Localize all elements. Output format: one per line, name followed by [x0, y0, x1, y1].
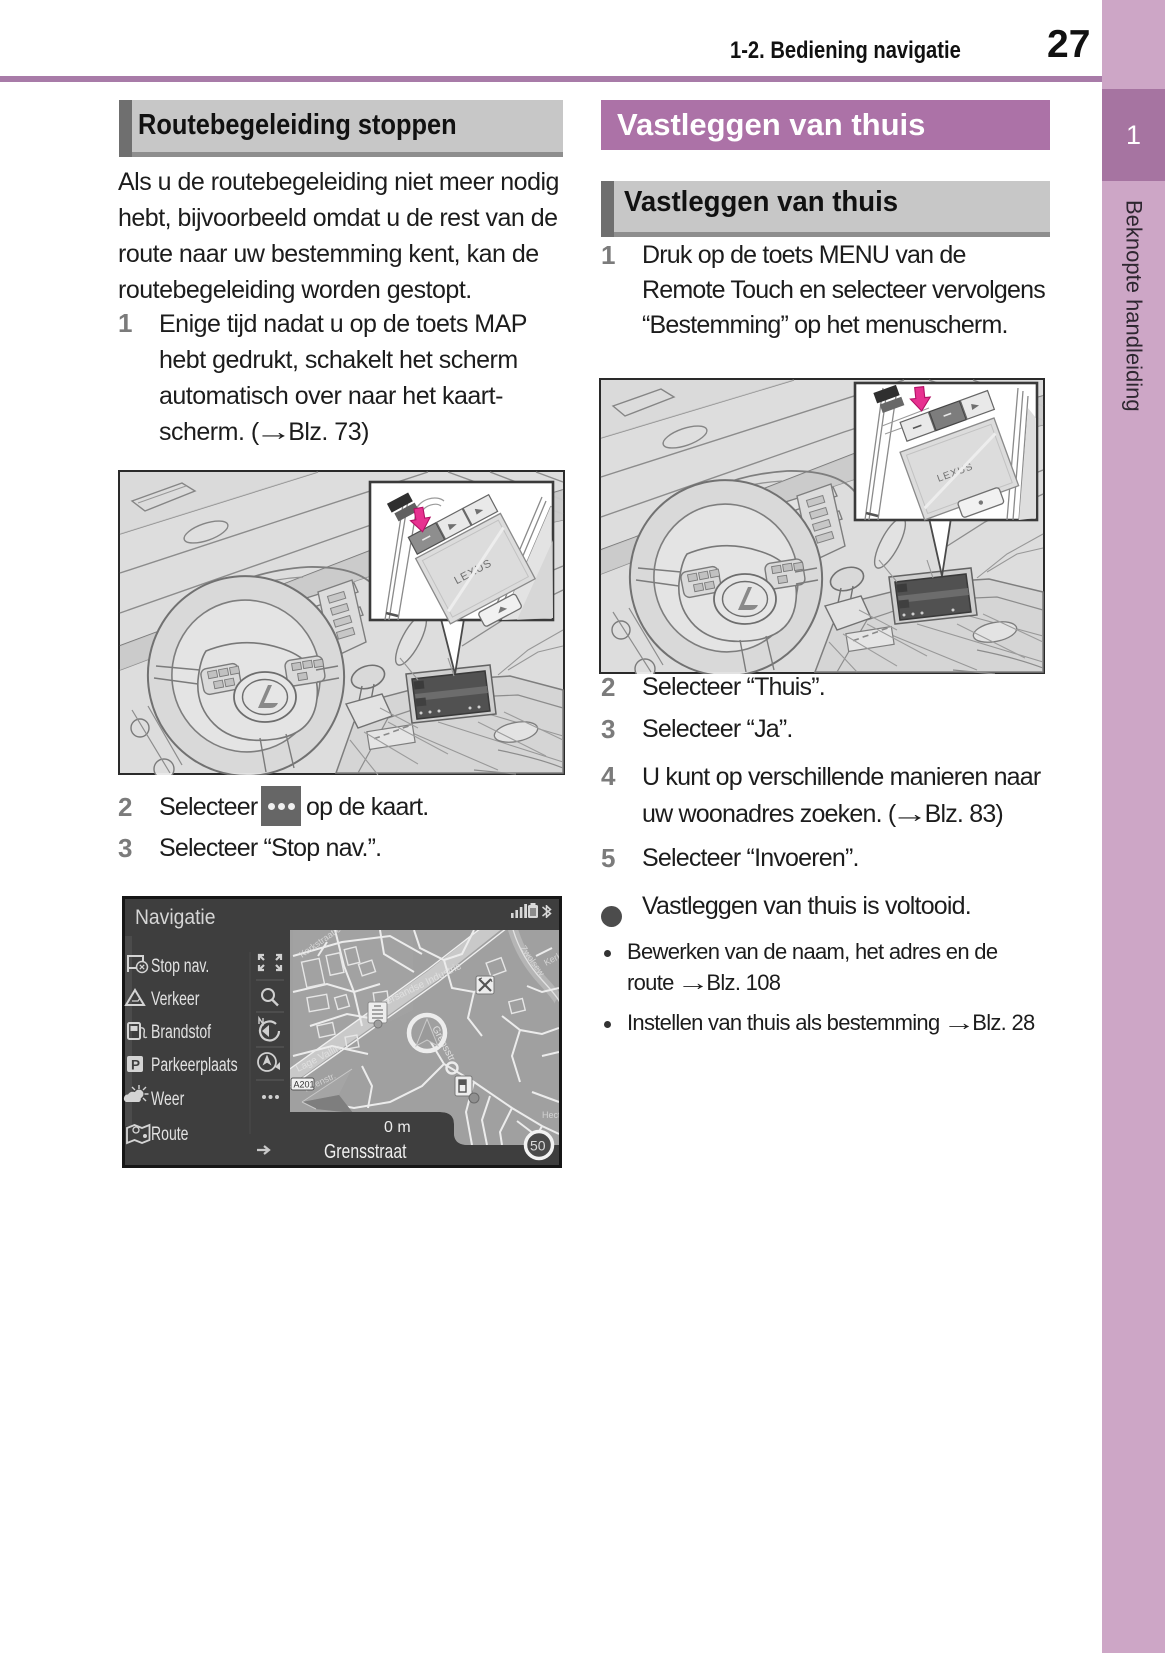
svg-text:Stop nav.: Stop nav.: [151, 955, 209, 977]
svg-text:Hect: Hect: [542, 1110, 561, 1120]
svg-text:Brandstof: Brandstof: [151, 1021, 211, 1043]
svg-text:Weer: Weer: [151, 1088, 185, 1110]
svg-text:0 m: 0 m: [384, 1119, 411, 1136]
svg-text:50: 50: [530, 1138, 546, 1154]
svg-text:Navigatie: Navigatie: [135, 906, 215, 929]
svg-text:Grensstraat: Grensstraat: [324, 1140, 407, 1162]
svg-text:P: P: [131, 1058, 140, 1073]
svg-text:Verkeer: Verkeer: [151, 988, 200, 1010]
svg-text:A201: A201: [294, 1080, 315, 1090]
svg-text:Route: Route: [151, 1123, 188, 1145]
svg-text:Parkeerplaats: Parkeerplaats: [151, 1054, 238, 1076]
